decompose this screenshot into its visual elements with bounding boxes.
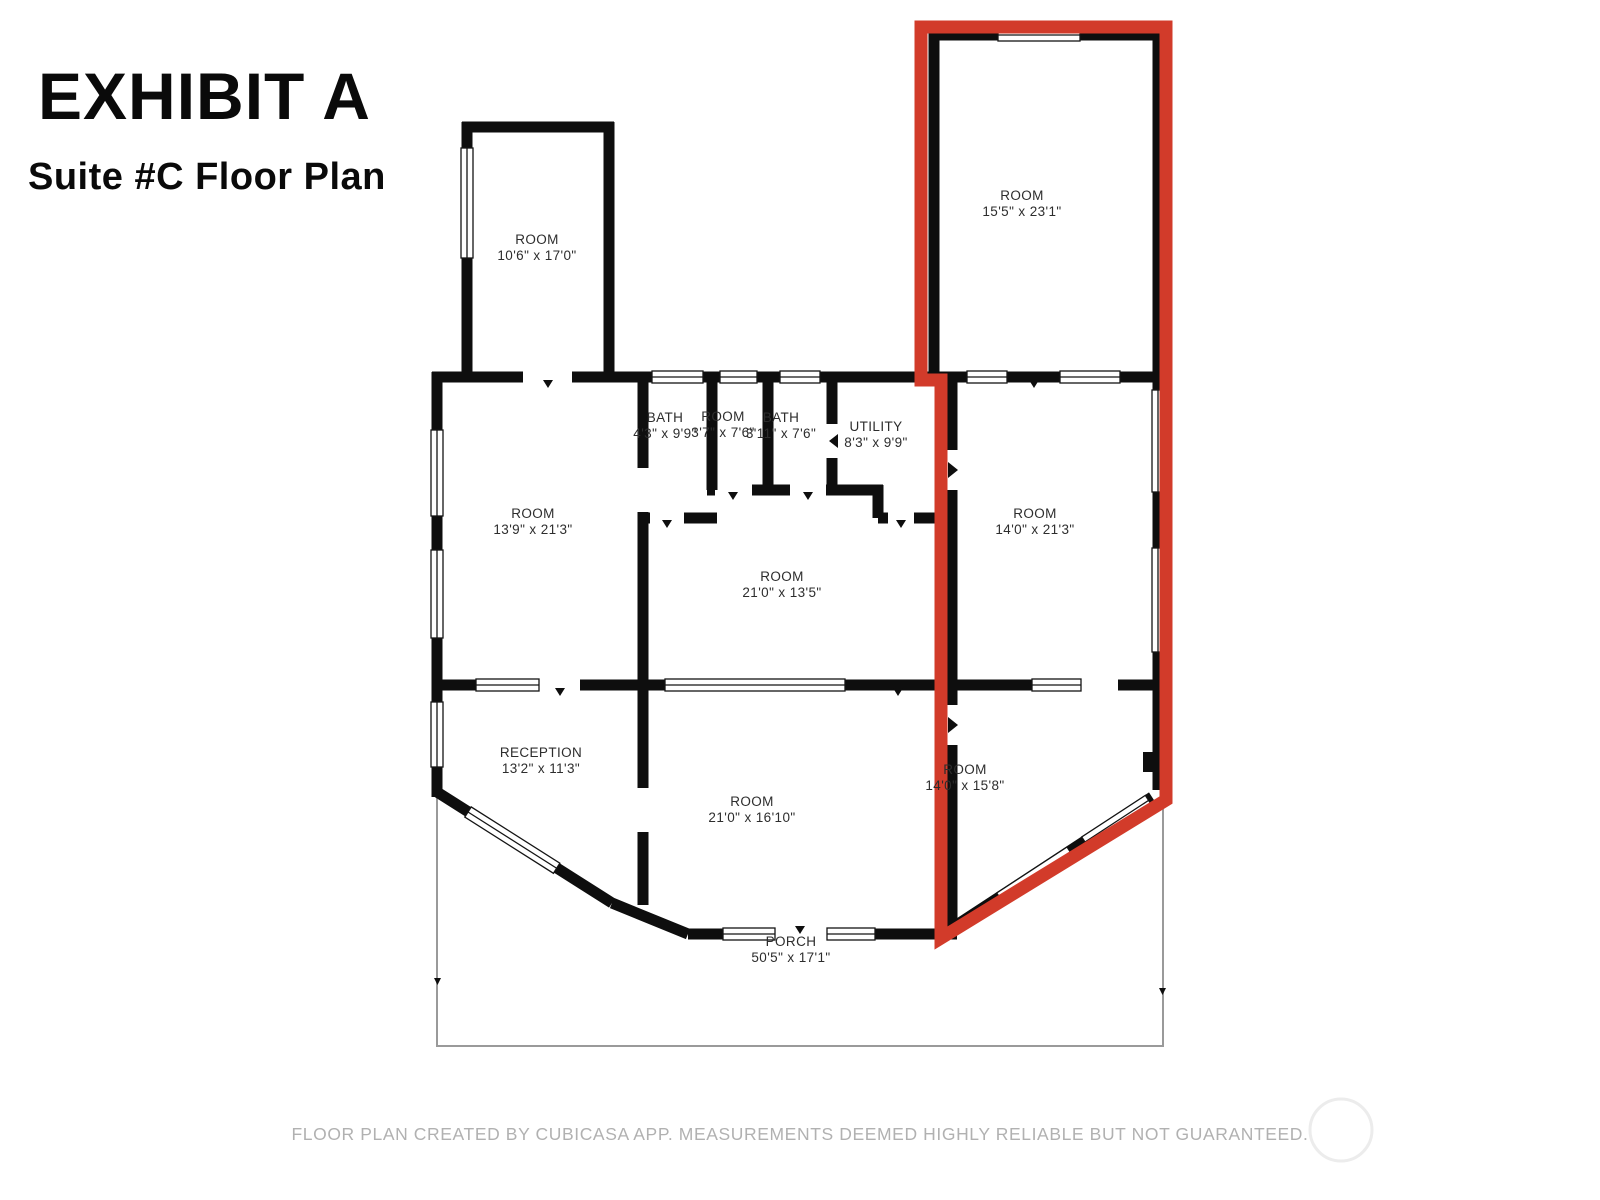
room-name: PORCH bbox=[751, 934, 830, 950]
room-dims: 3'11" x 7'6" bbox=[746, 426, 816, 442]
room-name: ROOM bbox=[708, 794, 795, 810]
room-label-bottom-center: ROOM 21'0" x 16'10" bbox=[708, 794, 795, 826]
disclaimer-text: FLOOR PLAN CREATED BY CUBICASA APP. MEAS… bbox=[0, 1124, 1600, 1145]
window bbox=[665, 679, 845, 691]
window bbox=[1060, 371, 1120, 383]
room-label-left: ROOM 13'9" x 21'3" bbox=[493, 506, 572, 538]
room-name: ROOM bbox=[742, 569, 821, 585]
room-dims: 4'3" x 9'9" bbox=[633, 426, 696, 442]
porch-outline bbox=[437, 795, 1163, 1046]
window bbox=[720, 371, 757, 383]
room-name: RECEPTION bbox=[500, 745, 582, 761]
room-label-bath-2: BATH 3'11" x 7'6" bbox=[746, 410, 816, 442]
room-dims: 13'9" x 21'3" bbox=[493, 522, 572, 538]
walls-layer bbox=[432, 29, 1163, 934]
room-label-suite-bottom: ROOM 14'0" x 15'8" bbox=[925, 762, 1004, 794]
room-label-bath-1: BATH 4'3" x 9'9" bbox=[633, 410, 696, 442]
room-dims: 13'2" x 11'3" bbox=[500, 761, 582, 777]
room-dims: 8'3" x 9'9" bbox=[844, 435, 907, 451]
room-name: ROOM bbox=[995, 506, 1074, 522]
room-dims: 14'0" x 15'8" bbox=[925, 778, 1004, 794]
room-dims: 21'0" x 16'10" bbox=[708, 810, 795, 826]
window bbox=[652, 371, 703, 383]
room-name: BATH bbox=[746, 410, 816, 426]
room-label-suite-middle: ROOM 14'0" x 21'3" bbox=[995, 506, 1074, 538]
room-label-center: ROOM 21'0" x 13'5" bbox=[742, 569, 821, 601]
room-dims: 15'5" x 23'1" bbox=[982, 204, 1061, 220]
room-name: BATH bbox=[633, 410, 696, 426]
floor-plan-page: EXHIBIT A Suite #C Floor Plan bbox=[0, 0, 1600, 1200]
window bbox=[967, 371, 1007, 383]
room-dims: 14'0" x 21'3" bbox=[995, 522, 1074, 538]
room-dims: 50'5" x 17'1" bbox=[751, 950, 830, 966]
window bbox=[827, 928, 875, 940]
window bbox=[1032, 679, 1081, 691]
window bbox=[476, 679, 539, 691]
room-label-porch: PORCH 50'5" x 17'1" bbox=[751, 934, 830, 966]
window bbox=[431, 702, 443, 767]
room-label-top-left: ROOM 10'6" x 17'0" bbox=[497, 232, 576, 264]
wall-notch bbox=[1143, 752, 1159, 772]
window bbox=[780, 371, 820, 383]
room-name: ROOM bbox=[493, 506, 572, 522]
window bbox=[431, 550, 443, 638]
room-name: ROOM bbox=[982, 188, 1061, 204]
room-dims: 21'0" x 13'5" bbox=[742, 585, 821, 601]
room-name: UTILITY bbox=[844, 419, 907, 435]
room-label-reception: RECEPTION 13'2" x 11'3" bbox=[500, 745, 582, 777]
windows-layer bbox=[431, 29, 1164, 940]
window bbox=[431, 430, 443, 516]
room-label-suite-top: ROOM 15'5" x 23'1" bbox=[982, 188, 1061, 220]
room-name: ROOM bbox=[925, 762, 1004, 778]
suite-outline bbox=[921, 27, 1166, 938]
room-label-utility: UTILITY 8'3" x 9'9" bbox=[844, 419, 907, 451]
room-name: ROOM bbox=[497, 232, 576, 248]
window bbox=[461, 148, 473, 258]
window bbox=[465, 807, 560, 873]
room-dims: 10'6" x 17'0" bbox=[497, 248, 576, 264]
